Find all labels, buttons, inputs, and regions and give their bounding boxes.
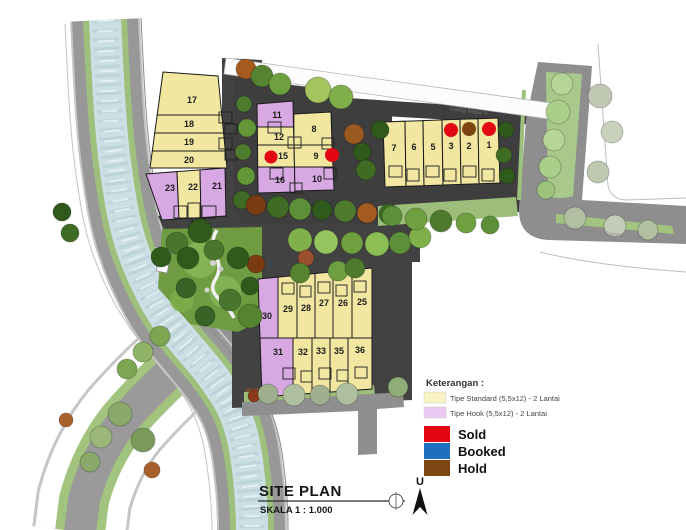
tree-icon <box>601 121 623 143</box>
lot-9-label: 9 <box>313 151 318 161</box>
lot-15-sold-marker <box>265 151 278 164</box>
tree-icon <box>334 200 356 222</box>
tree-icon <box>353 143 371 161</box>
tree-icon <box>543 129 565 151</box>
lot-8-label: 8 <box>311 124 316 134</box>
tree-icon <box>588 84 612 108</box>
tree-icon <box>246 195 266 215</box>
lot-15-label: 15 <box>278 151 288 161</box>
tree-icon <box>314 230 338 254</box>
tree-icon <box>269 73 291 95</box>
tree-icon <box>546 100 570 124</box>
lot-17-area <box>157 72 222 115</box>
site-plan-drawing: 17 18 19 20 23 22 21 11 12 15 16 8 9 10 <box>0 0 686 530</box>
lot-27-label: 27 <box>319 298 329 308</box>
legend-label-hook: Tipe Hook (5,5x12) - 2 Lantai <box>450 409 547 418</box>
lot-19-label: 19 <box>184 137 194 147</box>
tree-icon <box>305 77 331 103</box>
tree-icon <box>288 228 312 252</box>
lot-10-label: 10 <box>312 174 322 184</box>
tree-icon <box>587 161 609 183</box>
lot-22-area <box>177 170 201 219</box>
tree-icon <box>247 255 265 273</box>
tree-icon <box>80 452 100 472</box>
lot-3-label: 3 <box>448 141 453 151</box>
tree-icon <box>345 258 365 278</box>
tree-icon <box>388 377 408 397</box>
legend-swatch-standard <box>424 392 446 403</box>
tree-icon <box>389 232 411 254</box>
tree-icon <box>267 196 289 218</box>
tree-icon <box>117 359 137 379</box>
tree-icon <box>151 247 171 267</box>
legend-label-booked: Booked <box>458 444 506 459</box>
tree-icon <box>539 156 561 178</box>
tree-icon <box>108 402 132 426</box>
lot-23-label: 23 <box>165 183 175 193</box>
lot-20-label: 20 <box>184 155 194 165</box>
lot-28-label: 28 <box>301 303 311 313</box>
lot-32-label: 32 <box>298 347 308 357</box>
lot-9-sold-marker <box>325 148 339 162</box>
legend-swatch-hook <box>424 407 446 418</box>
legend: Keterangan : Tipe Standard (5,5x12) - 2 … <box>424 378 560 476</box>
lot-35-label: 35 <box>334 346 344 356</box>
tree-icon <box>133 342 153 362</box>
lot-6-area <box>405 121 424 187</box>
tree-icon <box>227 247 249 269</box>
tree-icon <box>481 216 499 234</box>
tree-icon <box>499 168 515 184</box>
block-center: 11 12 15 16 8 9 10 <box>257 101 336 193</box>
tree-icon <box>496 147 512 163</box>
legend-label-sold: Sold <box>458 427 486 442</box>
scale-label: SKALA 1 : 1.000 <box>260 505 333 516</box>
tree-icon <box>235 144 251 160</box>
lot-7-label: 7 <box>391 143 396 153</box>
tree-icon <box>150 326 170 346</box>
tree-icon <box>365 232 389 256</box>
tree-icon <box>90 426 112 448</box>
lot-18-label: 18 <box>184 119 194 129</box>
page-title: SITE PLAN <box>259 483 342 500</box>
tree-icon <box>241 277 259 295</box>
tree-icon <box>336 383 358 405</box>
tree-icon <box>328 261 348 281</box>
tree-icon <box>312 200 332 220</box>
tree-icon <box>258 384 278 404</box>
tree-icon <box>537 181 555 199</box>
lot-16-label: 16 <box>275 175 285 185</box>
lot-1-label: 1 <box>486 140 491 150</box>
block-south: 30 29 28 27 26 25 31 32 33 35 36 <box>258 268 372 397</box>
tree-icon <box>430 210 452 232</box>
legend-swatch-booked <box>424 443 450 459</box>
tree-icon <box>195 306 215 326</box>
lot-2-label: 2 <box>466 141 471 151</box>
tree-icon <box>357 203 377 223</box>
tree-icon <box>188 219 212 243</box>
tree-icon <box>329 85 353 109</box>
tree-icon <box>382 206 402 226</box>
tree-icon <box>131 428 155 452</box>
legend-swatch-hold <box>424 460 450 476</box>
lot-36-label: 36 <box>355 345 365 355</box>
lot-17-label: 17 <box>187 95 197 105</box>
tree-icon <box>238 119 256 137</box>
tree-icon <box>371 121 389 139</box>
tree-icon <box>238 304 262 328</box>
tree-icon <box>564 207 586 229</box>
lot-21-area <box>200 168 226 218</box>
lot-1-sold-marker <box>482 122 496 136</box>
lot-22-label: 22 <box>188 182 198 192</box>
legend-swatch-sold <box>424 426 450 442</box>
lot-33-label: 33 <box>316 346 326 356</box>
tree-icon <box>341 232 363 254</box>
lot-26-label: 26 <box>338 298 348 308</box>
tree-icon <box>456 213 476 233</box>
tree-icon <box>177 247 199 269</box>
tree-icon <box>289 198 311 220</box>
tree-icon <box>551 73 573 95</box>
lot-21-label: 21 <box>212 181 222 191</box>
north-label: U <box>416 476 424 488</box>
north-arrow-icon <box>413 488 428 515</box>
tree-icon <box>53 203 71 221</box>
tree-icon <box>59 413 73 427</box>
lot-11-label: 11 <box>272 110 282 120</box>
lot-2-hold-marker <box>462 122 476 136</box>
tree-icon <box>356 160 376 180</box>
lot-29-label: 29 <box>283 304 293 314</box>
tree-icon <box>237 167 255 185</box>
tree-icon <box>204 240 224 260</box>
tree-icon <box>236 96 252 112</box>
tree-icon <box>61 224 79 242</box>
tree-icon <box>219 289 241 311</box>
legend-label-hold: Hold <box>458 461 487 476</box>
lot-6-label: 6 <box>411 142 416 152</box>
lot-30-area <box>258 277 278 338</box>
lot-12-label: 12 <box>274 132 284 142</box>
tree-icon <box>310 385 330 405</box>
lot-31-label: 31 <box>273 347 283 357</box>
tree-icon <box>176 278 196 298</box>
tree-icon <box>144 462 160 478</box>
site-plan-page: 17 18 19 20 23 22 21 11 12 15 16 8 9 10 <box>0 0 686 530</box>
tree-icon <box>344 124 364 144</box>
lot-3-sold-marker <box>444 123 458 137</box>
lot-30-label: 30 <box>262 311 272 321</box>
tree-icon <box>498 122 514 138</box>
tree-icon <box>290 263 310 283</box>
legend-title: Keterangan : <box>426 378 484 389</box>
tree-icon <box>283 384 305 406</box>
lot-25-label: 25 <box>357 297 367 307</box>
legend-label-standard: Tipe Standard (5,5x12) - 2 Lantai <box>450 394 560 403</box>
lot-5-label: 5 <box>430 142 435 152</box>
tree-icon <box>405 208 427 230</box>
